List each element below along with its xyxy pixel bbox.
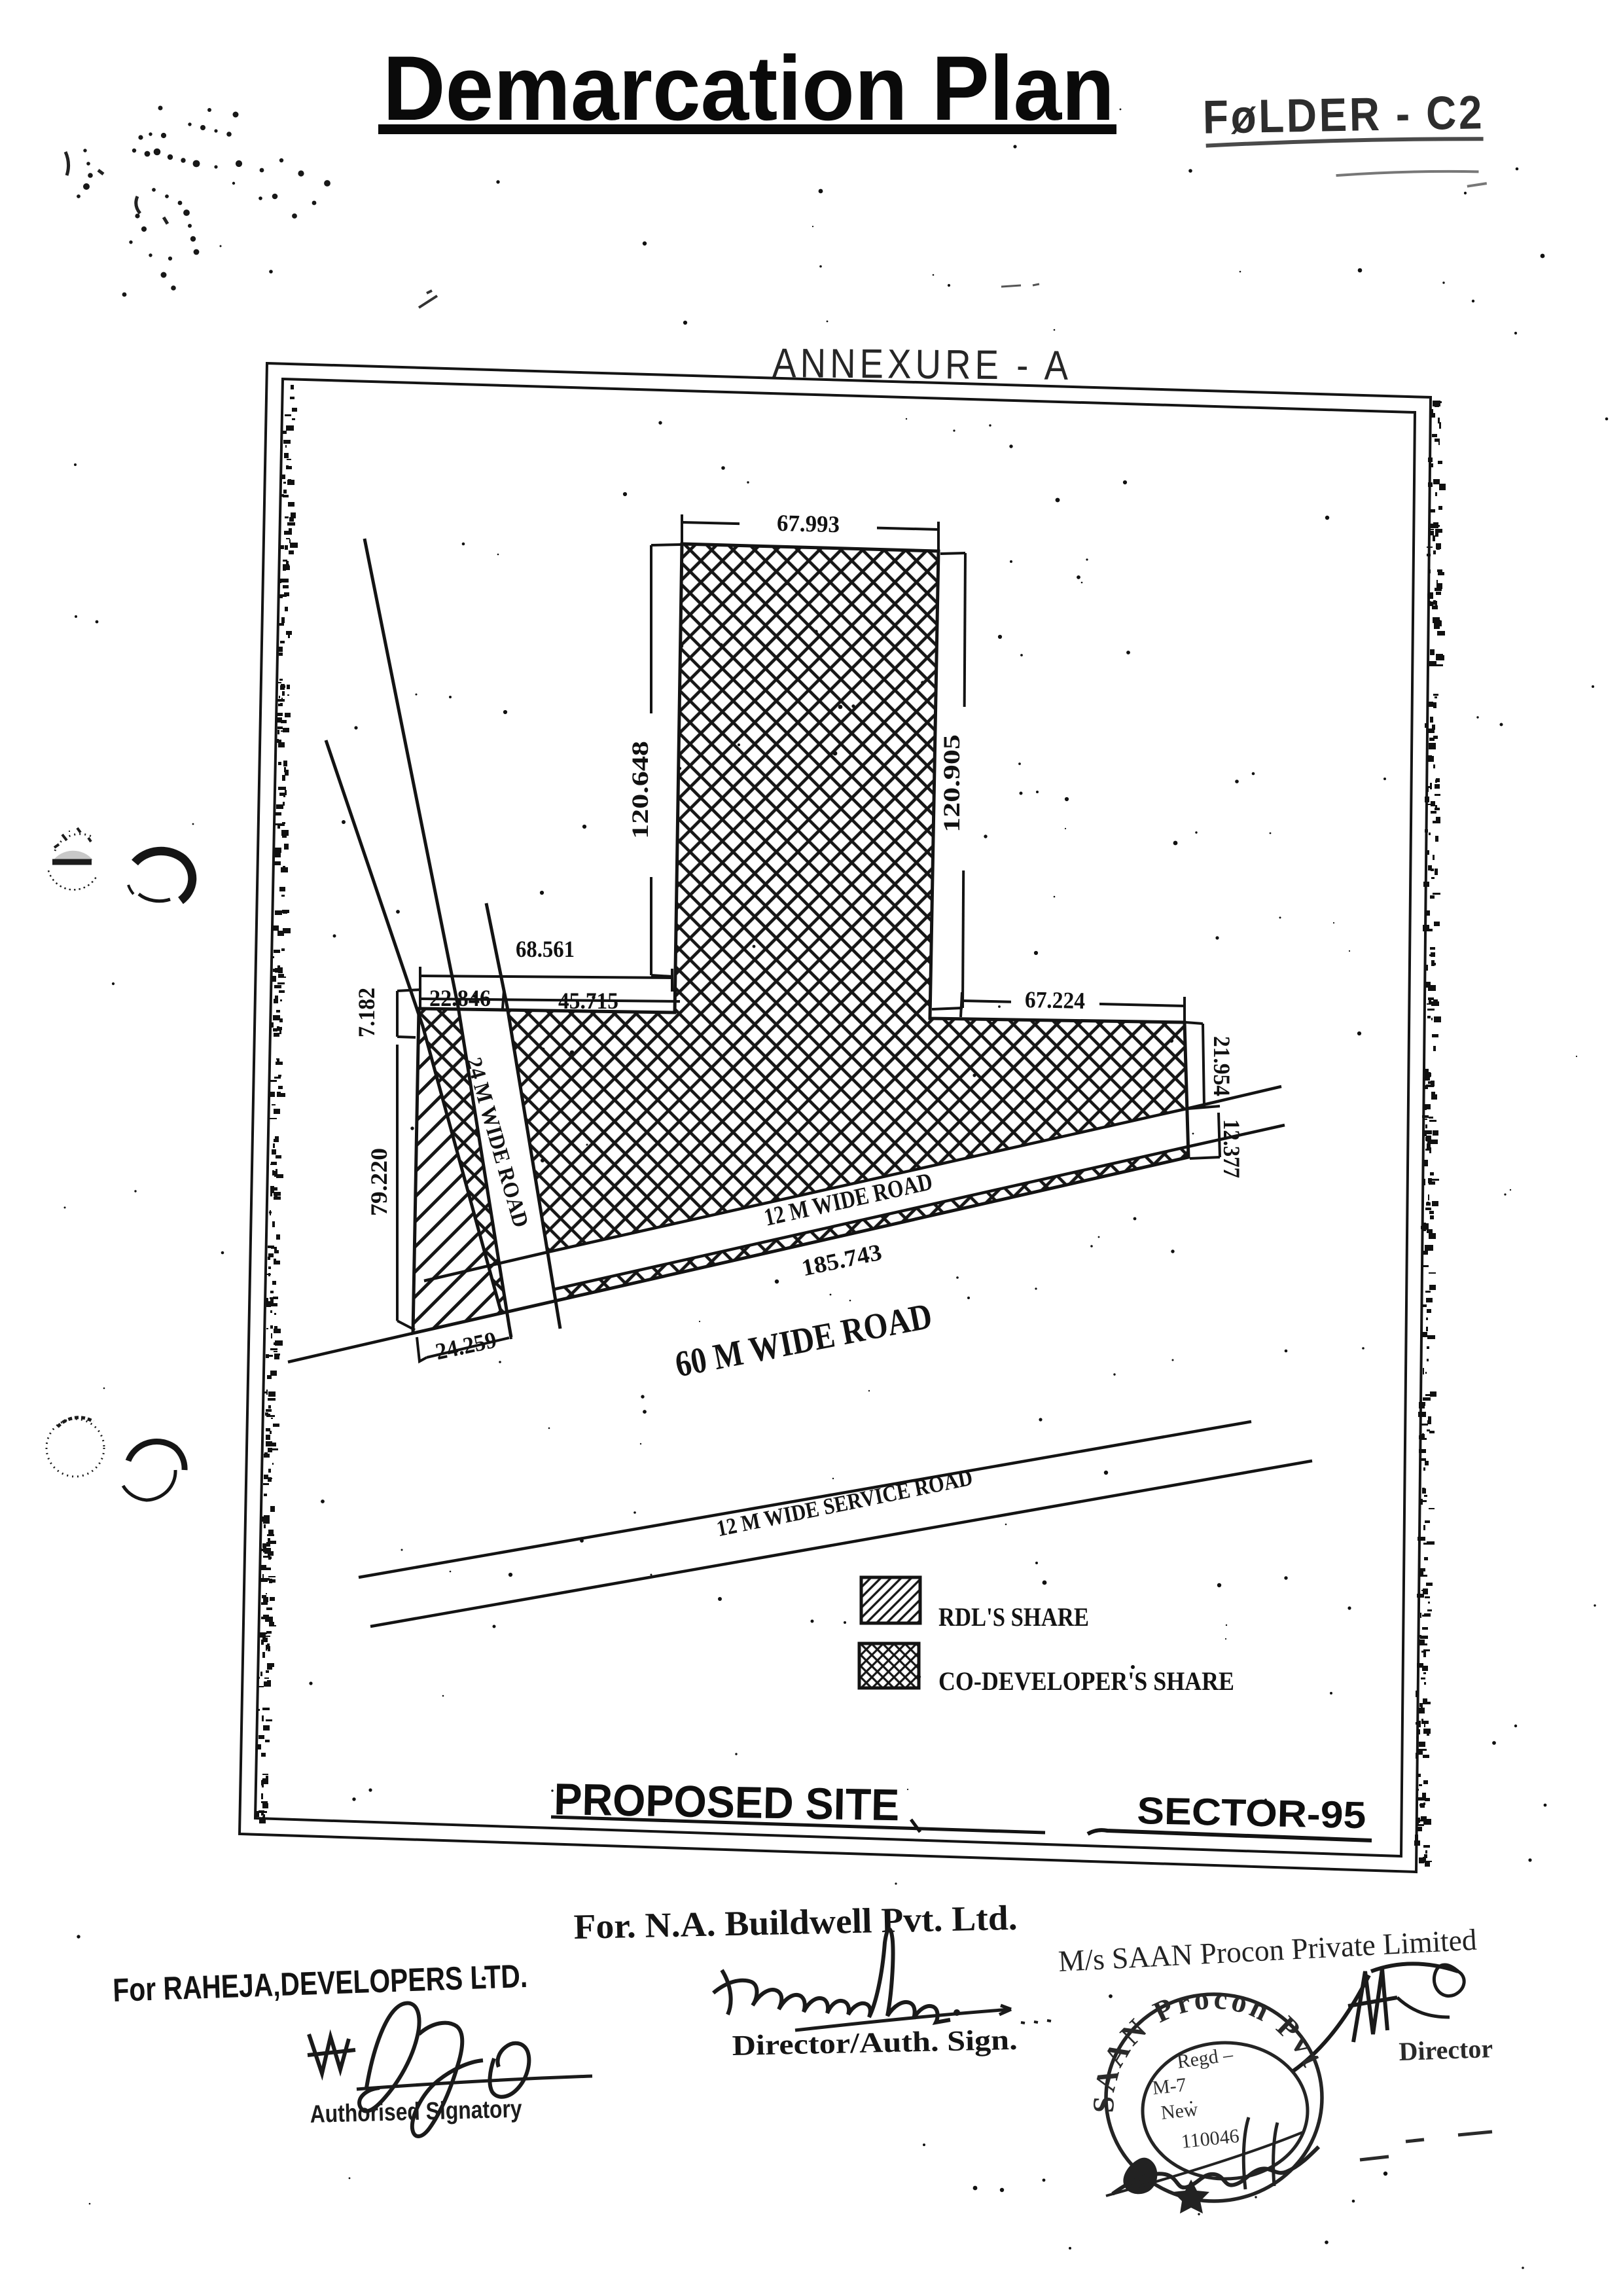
svg-text:67.224: 67.224: [1025, 986, 1086, 1014]
svg-text:45.715: 45.715: [558, 988, 618, 1014]
svg-text:New: New: [1160, 2098, 1199, 2124]
svg-text:CO-DEVELOPER'S SHARE: CO-DEVELOPER'S SHARE: [938, 1666, 1234, 1696]
svg-text:12.377: 12.377: [1219, 1119, 1245, 1178]
svg-text:FøLDER - C2: FøLDER - C2: [1202, 86, 1484, 143]
svg-text:RDL'S SHARE: RDL'S SHARE: [938, 1602, 1089, 1632]
svg-text:Director: Director: [1399, 2034, 1493, 2066]
svg-text:7.182: 7.182: [353, 988, 380, 1037]
svg-text:79.220: 79.220: [366, 1148, 392, 1216]
svg-text:22.846: 22.846: [429, 985, 491, 1011]
svg-text:120.648: 120.648: [627, 741, 653, 839]
svg-text:M-7: M-7: [1151, 2074, 1187, 2099]
svg-text:SECTOR-95: SECTOR-95: [1137, 1789, 1366, 1837]
svg-text:68.561: 68.561: [516, 936, 575, 962]
svg-text:21.954: 21.954: [1209, 1036, 1235, 1096]
svg-text:120.905: 120.905: [938, 734, 965, 833]
svg-text:Authorised Signatory: Authorised Signatory: [310, 2096, 522, 2128]
svg-text:67.993: 67.993: [776, 510, 840, 537]
svg-text:Director/Auth. Sign.: Director/Auth. Sign.: [732, 2024, 1018, 2062]
svg-text:Demarcation Plan: Demarcation Plan: [383, 37, 1115, 139]
